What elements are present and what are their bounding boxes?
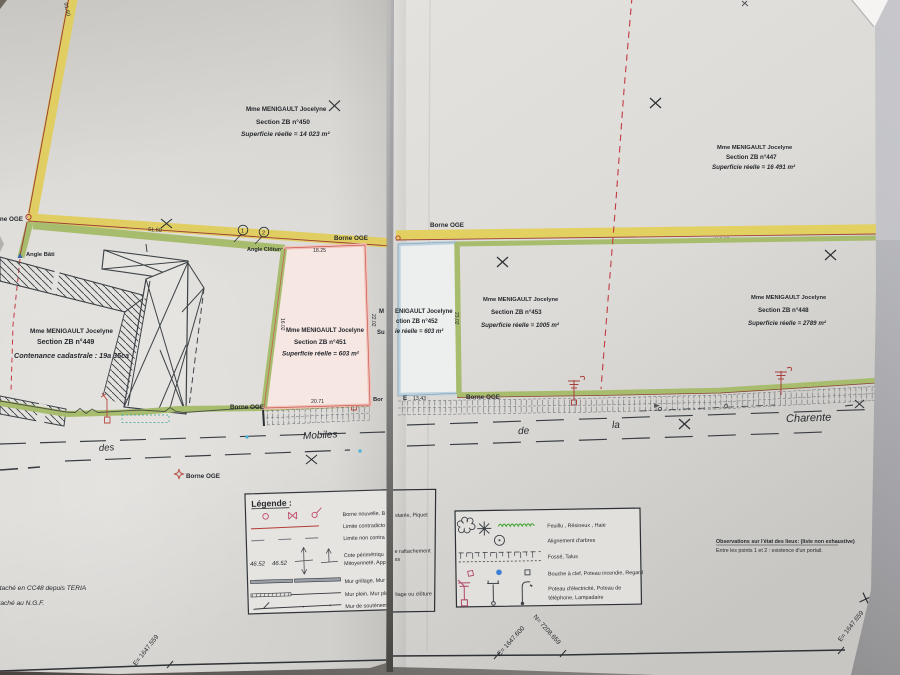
svg-text:Section ZB n°453: Section ZB n°453 xyxy=(491,309,542,316)
svg-text:Mme MENIGAULT Jocelyne: Mme MENIGAULT Jocelyne xyxy=(717,145,793,151)
svg-text:16.02: 16.02 xyxy=(279,318,285,331)
svg-text:Mme MENIGAULT Jocelyne: Mme MENIGAULT Jocelyne xyxy=(30,328,113,335)
svg-text:Borne nouvelle, B: Borne nouvelle, B xyxy=(343,511,386,518)
svg-text:la: la xyxy=(612,420,621,431)
svg-text:rattaché en CC48 depuis TERIA: rattaché en CC48 depuis TERIA xyxy=(0,585,87,592)
svg-text:Mme MENIGAULT Jocelyne: Mme MENIGAULT Jocelyne xyxy=(286,328,365,334)
svg-text:Angle Clôture: Angle Clôture xyxy=(247,247,283,253)
svg-text:e rattachement: e rattachement xyxy=(395,548,432,555)
svg-text:46.52: 46.52 xyxy=(272,561,288,567)
svg-text:Observations sur l'état des li: Observations sur l'état des lieux: (list… xyxy=(716,539,855,545)
svg-text:téléphone, Lampadaire: téléphone, Lampadaire xyxy=(548,595,603,602)
svg-text:Bor: Bor xyxy=(373,397,384,403)
svg-text:Superficie réelle = 2789 m²: Superficie réelle = 2789 m² xyxy=(748,320,827,327)
svg-text:des: des xyxy=(99,442,115,454)
svg-text:Légende :: Légende : xyxy=(251,498,292,509)
svg-text:Charente: Charente xyxy=(786,412,832,426)
svg-text:Superficie réelle = 603 m²: Superficie réelle = 603 m² xyxy=(282,351,360,358)
svg-text:attaché au N.G.F.: attaché au N.G.F. xyxy=(0,600,44,607)
svg-text:ction ZB n°452: ction ZB n°452 xyxy=(396,319,438,325)
svg-text:Mur de soutènem: Mur de soutènem xyxy=(345,603,388,610)
svg-text:Superficie réelle = 16 491 m²: Superficie réelle = 16 491 m² xyxy=(712,164,796,171)
svg-text:Fossé, Talus: Fossé, Talus xyxy=(548,554,579,560)
svg-text:23,02: 23,02 xyxy=(453,312,459,325)
svg-text:Borne OGE: Borne OGE xyxy=(230,404,264,411)
svg-text:Mobiles: Mobiles xyxy=(303,429,338,442)
svg-text:1: 1 xyxy=(241,229,244,235)
svg-text:Section ZB n°449: Section ZB n°449 xyxy=(37,338,94,346)
svg-text:Limite non contra: Limite non contra xyxy=(343,535,385,542)
svg-text:ie réelle = 603 m²: ie réelle = 603 m² xyxy=(395,328,444,335)
svg-text:Superficie réelle = 1005 m²: Superficie réelle = 1005 m² xyxy=(481,322,560,329)
svg-text:Section ZB n°450: Section ZB n°450 xyxy=(256,118,310,126)
svg-text:Poteau d'électricité, Poteau d: Poteau d'électricité, Poteau de xyxy=(548,585,621,592)
svg-text:ss: ss xyxy=(395,557,401,563)
svg-text:M: M xyxy=(379,309,384,315)
svg-text:Contenance cadastrale : 19a 35: Contenance cadastrale : 19a 35ca xyxy=(14,351,129,360)
svg-text:Borne OGE: Borne OGE xyxy=(0,216,23,223)
svg-text:Mitoyenneté, App: Mitoyenneté, App xyxy=(344,560,386,567)
svg-text:liage ou clôture: liage ou clôture xyxy=(395,591,432,598)
svg-text:Limite contradicto: Limite contradicto xyxy=(343,523,385,530)
svg-text:Mme MENIGAULT Jocelyne: Mme MENIGAULT Jocelyne xyxy=(483,297,559,303)
svg-text:Su: Su xyxy=(377,330,385,336)
svg-text:Mme MENIGAULT Jocelyne: Mme MENIGAULT Jocelyne xyxy=(246,106,327,113)
svg-text:de: de xyxy=(518,426,530,437)
svg-text:Borne OGE: Borne OGE xyxy=(186,473,220,480)
svg-text:22.02: 22.02 xyxy=(370,314,376,327)
svg-text:Superficie réelle = 14 023 m²: Superficie réelle = 14 023 m² xyxy=(241,131,330,138)
svg-text:ENIGAULT Jocelyne: ENIGAULT Jocelyne xyxy=(395,309,453,315)
svg-text:18.25: 18.25 xyxy=(313,248,326,254)
svg-text:20.71: 20.71 xyxy=(311,399,324,405)
svg-text:Entre les points 1 et 2 : exis: Entre les points 1 et 2 : existence d'un… xyxy=(716,548,823,554)
svg-text:Mur plein, Mur pla: Mur plein, Mur pla xyxy=(345,591,388,598)
svg-text:Alignement d'arbres: Alignement d'arbres xyxy=(547,538,595,545)
svg-text:Section ZB n°447: Section ZB n°447 xyxy=(726,154,777,161)
svg-text:Borne OGE: Borne OGE xyxy=(430,222,464,229)
svg-text:Section ZB n°451: Section ZB n°451 xyxy=(294,338,347,346)
svg-text:stanle, Piquet: stanle, Piquet xyxy=(395,512,428,519)
svg-text:Feuillu , Résineux , Haie: Feuillu , Résineux , Haie xyxy=(547,523,606,530)
svg-text:Mme MENIGAULT Jocelyne: Mme MENIGAULT Jocelyne xyxy=(751,295,827,301)
svg-text:Mur grillage, Mur: Mur grillage, Mur xyxy=(345,578,386,585)
svg-text:Section ZB n°448: Section ZB n°448 xyxy=(758,307,809,314)
svg-text:Cote périmétriqu: Cote périmétriqu xyxy=(344,552,384,559)
svg-text:Borne OGE: Borne OGE xyxy=(334,235,368,242)
svg-text:46.52: 46.52 xyxy=(250,561,266,567)
svg-text:Angle Bâti: Angle Bâti xyxy=(26,252,55,258)
svg-text:2: 2 xyxy=(262,231,265,237)
